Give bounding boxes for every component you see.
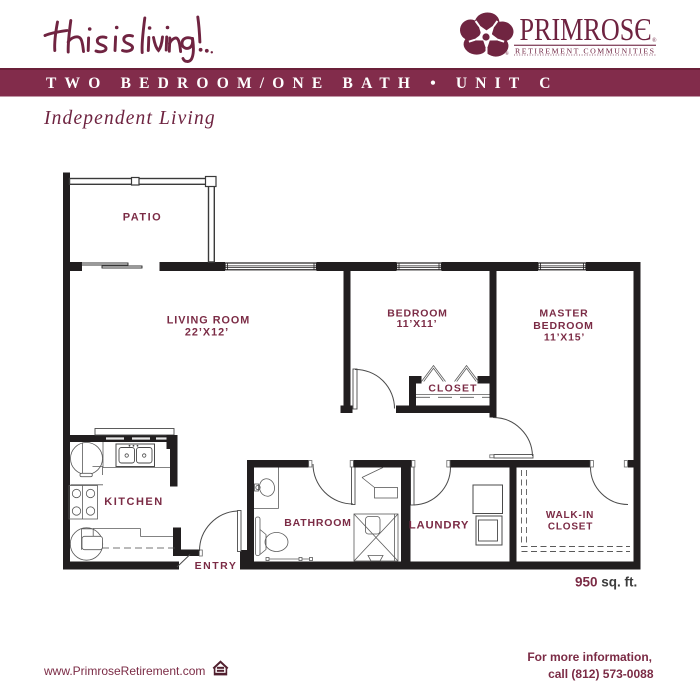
svg-text:LAUNDRY: LAUNDRY	[409, 520, 469, 532]
svg-text:CLOSET: CLOSET	[548, 522, 593, 533]
svg-text:RETIREMENT COMMUNITIES: RETIREMENT COMMUNITIES	[515, 46, 654, 55]
svg-text:BEDROOM: BEDROOM	[533, 320, 593, 332]
svg-text:KITCHEN: KITCHEN	[104, 496, 163, 508]
svg-text:MASTER: MASTER	[539, 308, 588, 320]
svg-text:LIVING ROOM: LIVING ROOM	[167, 315, 251, 327]
svg-text:ENTRY: ENTRY	[195, 560, 238, 572]
svg-text:CLOSET: CLOSET	[428, 384, 477, 395]
svg-text:Independent Living: Independent Living	[43, 108, 216, 129]
svg-text:PRIMROSЄ: PRIMROSЄ	[520, 11, 652, 47]
svg-text:11’X15’: 11’X15’	[544, 332, 585, 344]
svg-text:PATIO: PATIO	[123, 212, 162, 224]
svg-text:®: ®	[505, 51, 509, 57]
svg-text:TWO BEDROOM/ONE BATH • UNIT C: TWO BEDROOM/ONE BATH • UNIT C	[46, 75, 559, 92]
svg-text:WALK-IN: WALK-IN	[546, 510, 594, 521]
svg-text:950 sq. ft.: 950 sq. ft.	[575, 575, 637, 590]
svg-text:www.PrimroseRetirement.com: www.PrimroseRetirement.com	[43, 664, 205, 678]
svg-text:22’X12’: 22’X12’	[185, 327, 229, 339]
svg-text:For more information,: For more information,	[527, 650, 652, 664]
svg-text:11’X11’: 11’X11’	[397, 318, 438, 330]
svg-text:BATHROOM: BATHROOM	[284, 517, 351, 529]
svg-text:call (812) 573-0088: call (812) 573-0088	[548, 667, 654, 681]
svg-text:®: ®	[652, 37, 657, 44]
